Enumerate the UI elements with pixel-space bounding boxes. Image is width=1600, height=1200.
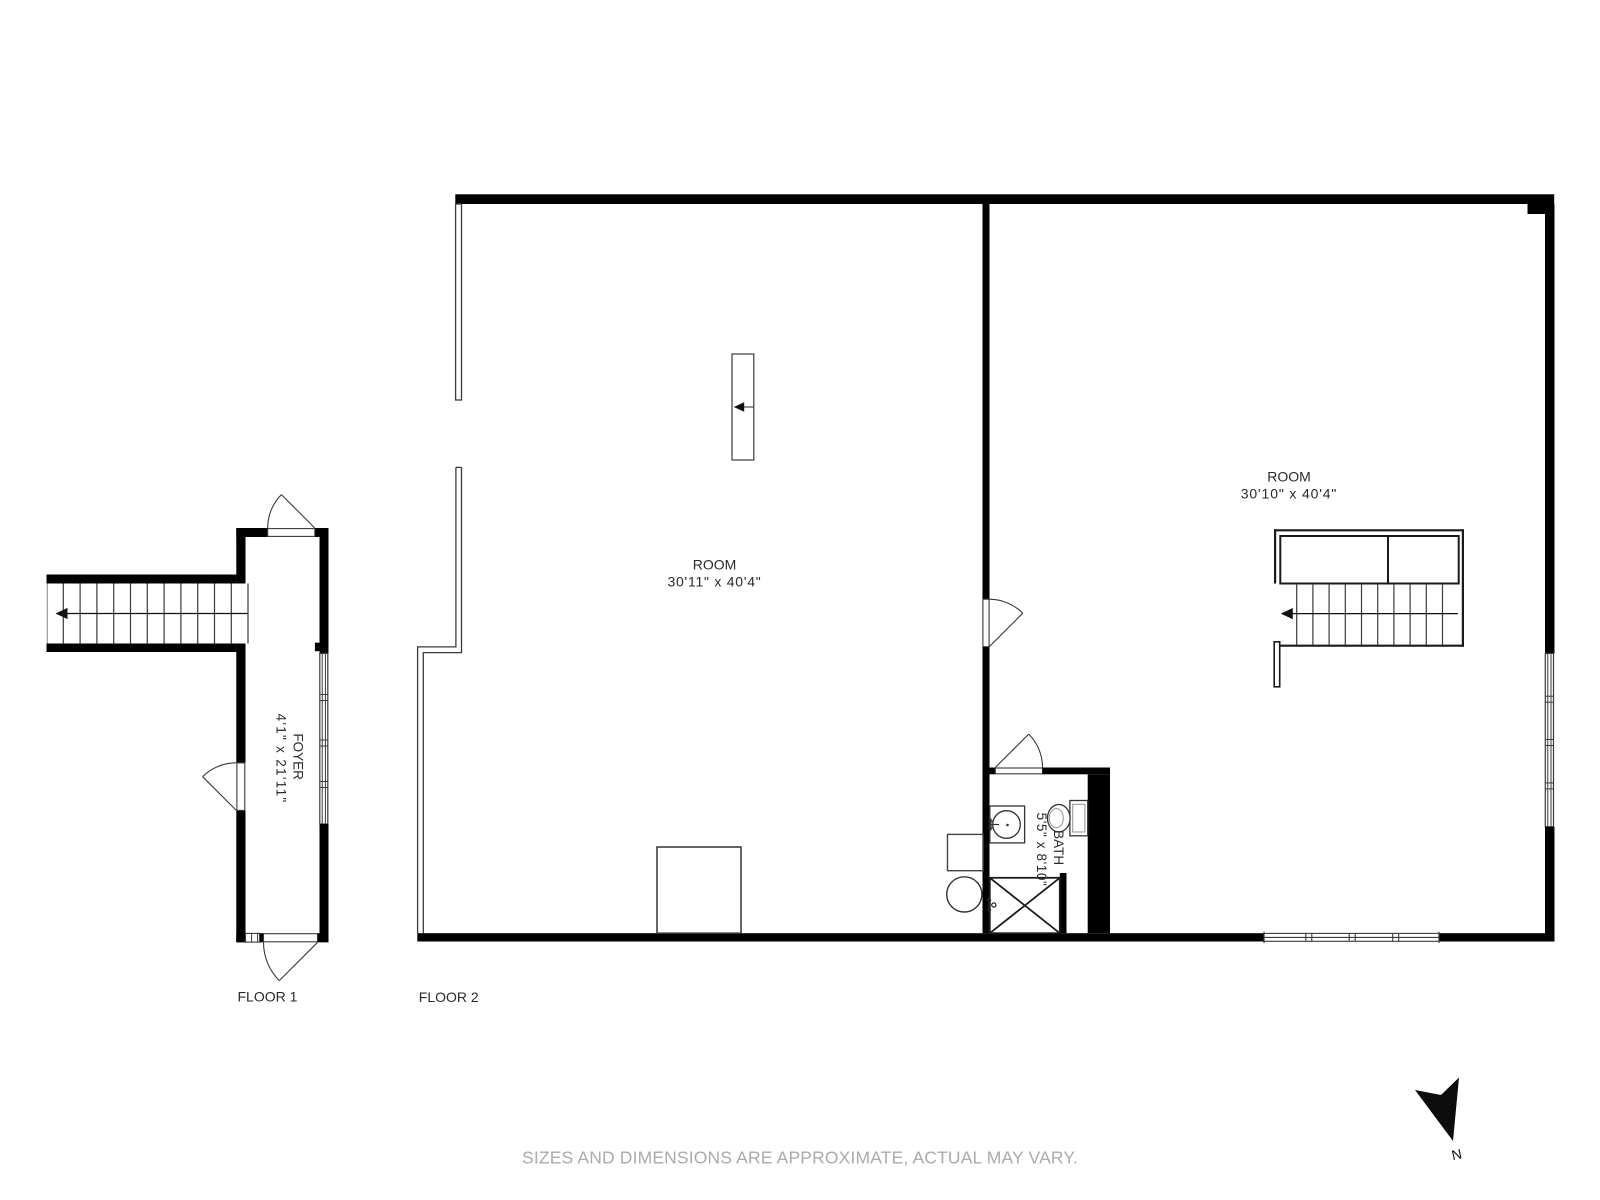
svg-text:30'10" x 40'4": 30'10" x 40'4" [1241, 486, 1337, 502]
svg-text:FLOOR 1: FLOOR 1 [238, 989, 298, 1005]
svg-text:30'11" x 40'4": 30'11" x 40'4" [667, 574, 761, 590]
svg-text:ROOM: ROOM [693, 556, 737, 572]
svg-text:SIZES AND DIMENSIONS ARE APPRO: SIZES AND DIMENSIONS ARE APPROXIMATE, AC… [522, 1147, 1078, 1167]
svg-text:ROOM: ROOM [1267, 468, 1311, 484]
svg-text:FLOOR 2: FLOOR 2 [419, 989, 479, 1005]
